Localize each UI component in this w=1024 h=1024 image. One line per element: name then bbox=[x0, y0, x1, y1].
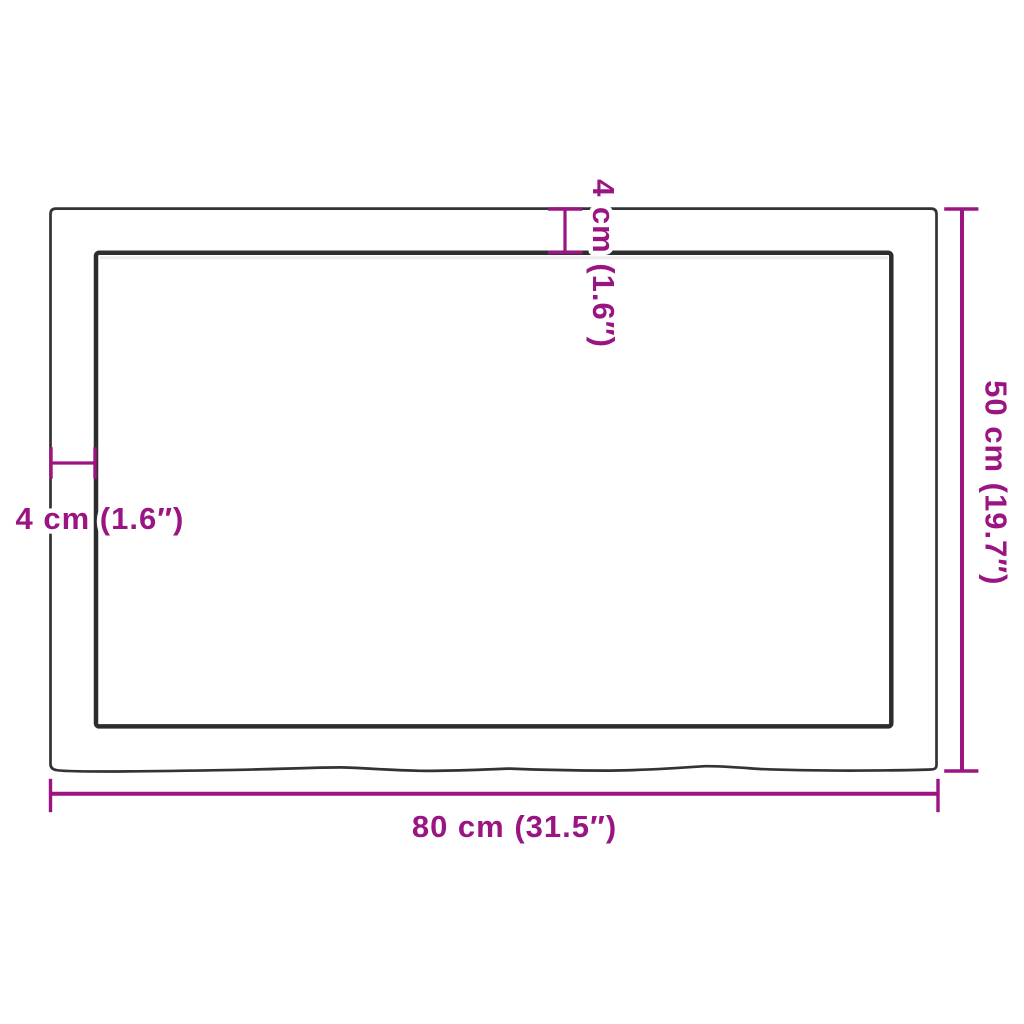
svg-text:4 cm (1.6″): 4 cm (1.6″) bbox=[16, 501, 185, 536]
svg-text:80 cm (31.5″): 80 cm (31.5″) bbox=[412, 809, 617, 844]
svg-text:50 cm (19.7″): 50 cm (19.7″) bbox=[979, 380, 1014, 585]
svg-text:4 cm (1.6″): 4 cm (1.6″) bbox=[586, 179, 621, 348]
